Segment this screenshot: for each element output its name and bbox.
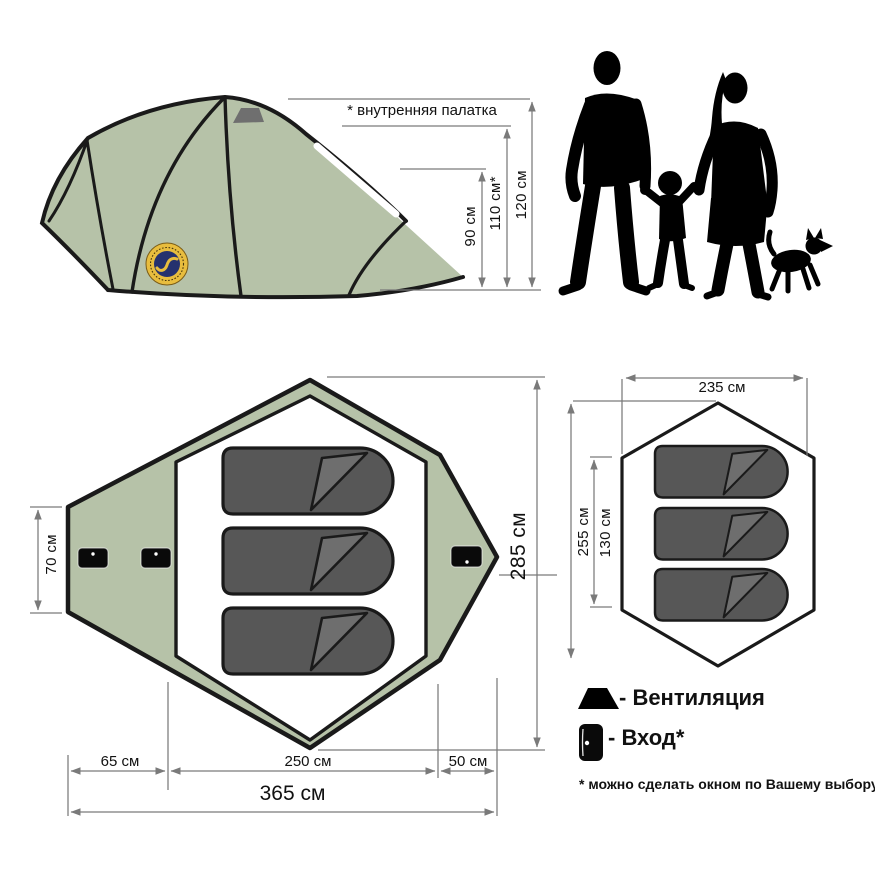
label-length-285: 285 см bbox=[507, 512, 531, 580]
legend-footnote: * можно сделать окном по Вашему выбору bbox=[579, 776, 875, 792]
label-width-235: 235 см bbox=[662, 379, 782, 396]
inner-tent-note: * внутренняя палатка bbox=[338, 102, 506, 119]
family-silhouette bbox=[563, 51, 833, 297]
legend-ventilation-label: - Вентиляция bbox=[619, 685, 765, 711]
door-icon bbox=[451, 546, 482, 567]
ventilation-icon bbox=[578, 688, 619, 709]
tent-spec-diagram: * внутренняя палатка 90 см 110 см* 120 с… bbox=[0, 0, 875, 875]
brand-badge bbox=[146, 243, 188, 285]
label-width-70: 70 см bbox=[43, 534, 60, 575]
label-height-120: 120 см bbox=[513, 170, 530, 219]
label-seg-50: 50 см bbox=[423, 753, 513, 770]
floor-plan bbox=[68, 380, 497, 748]
entrance-icon bbox=[579, 724, 603, 761]
man-silhouette bbox=[563, 51, 650, 291]
door-icon bbox=[78, 548, 108, 568]
label-seg-65: 65 см bbox=[75, 753, 165, 770]
label-height-90: 90 см bbox=[462, 206, 479, 247]
label-seg-130: 130 см bbox=[597, 508, 614, 557]
inner-tent-plan bbox=[622, 403, 814, 666]
diagram-art bbox=[0, 0, 875, 875]
woman-silhouette bbox=[699, 72, 772, 297]
child-silhouette bbox=[648, 171, 694, 288]
label-length-255: 255 см bbox=[575, 507, 592, 556]
label-seg-250: 250 см bbox=[258, 753, 358, 770]
legend-entrance-label: - Вход* bbox=[608, 725, 684, 751]
label-height-110: 110 см* bbox=[487, 176, 504, 231]
tent-side-view bbox=[42, 97, 463, 297]
dog-silhouette bbox=[769, 228, 833, 291]
door-icon bbox=[141, 548, 171, 568]
label-total-365: 365 см bbox=[210, 782, 375, 806]
